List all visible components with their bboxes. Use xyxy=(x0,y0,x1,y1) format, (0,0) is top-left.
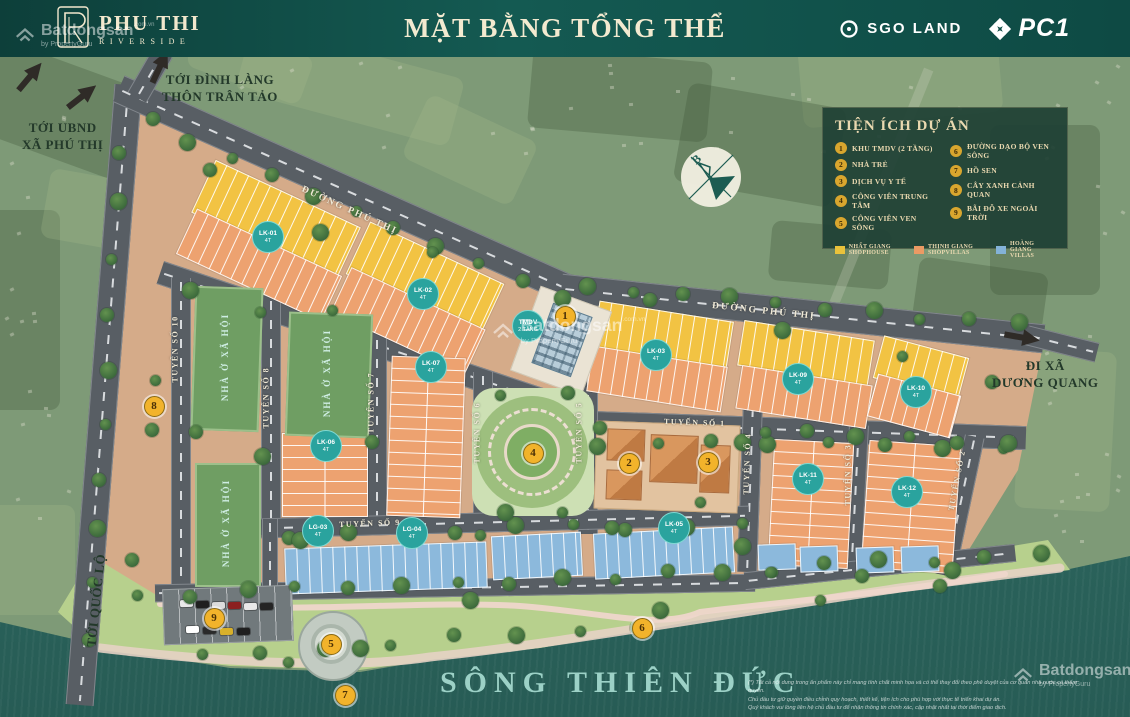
block-code-marker: TMDV2 TẦNG xyxy=(512,310,544,342)
block-code-marker: LK-034T xyxy=(640,339,672,371)
category-swatch xyxy=(996,246,1006,254)
block-code-marker: LK-064T xyxy=(310,430,342,462)
amenity-marker: 7 xyxy=(335,685,356,706)
sgo-dragon-icon xyxy=(838,18,860,40)
project-subtitle: RIVERSIDE xyxy=(99,37,201,46)
amenity-marker: 2 xyxy=(619,453,640,474)
amenities-legend: TIỆN ÍCH DỰ ÁN 1KHU TMDV (2 TẦNG)2NHÀ TR… xyxy=(822,107,1068,249)
pc1-label: PC1 xyxy=(1018,14,1070,43)
header-bar: PHU THI RIVERSIDE MẶT BẰNG TỔNG THỂ SGO … xyxy=(0,0,1130,57)
block-code-marker: LG-034T xyxy=(302,515,334,547)
legend-item: 6ĐƯỜNG DẠO BỘ VEN SÔNG xyxy=(950,142,1055,160)
category-swatch xyxy=(835,246,845,254)
partner-logos: SGO LAND PC1 xyxy=(838,0,1070,57)
site-plan-poster: NHÀ Ở XÃ HỘINHÀ Ở XÃ HỘINHÀ Ở XÃ HỘI ĐƯỜ… xyxy=(0,0,1130,717)
legend-category: THỊNH GIANG SHOPVILLAS xyxy=(914,244,982,256)
project-logo: PHU THI RIVERSIDE xyxy=(56,5,201,54)
legend-category: HOÀNG GIANG VILLAS xyxy=(996,241,1055,259)
legend-column-2: 6ĐƯỜNG DẠO BỘ VEN SÔNG7HỒ SEN8CÂY XANH C… xyxy=(950,142,1055,232)
legend-title: TIỆN ÍCH DỰ ÁN xyxy=(835,118,1055,135)
legend-item: 9BÃI ĐỖ XE NGOÀI TRỜI xyxy=(950,204,1055,222)
category-swatch xyxy=(914,246,924,254)
block-code-marker: LK-094T xyxy=(782,363,814,395)
sgo-land-label: SGO LAND xyxy=(867,20,962,37)
pc1-diamond-icon xyxy=(988,17,1012,41)
block-code-marker: LK-114T xyxy=(792,463,824,495)
legend-item: 5CÔNG VIÊN VEN SÔNG xyxy=(835,214,940,232)
pc1-logo: PC1 xyxy=(988,14,1070,43)
block-code-marker: LK-124T xyxy=(891,476,923,508)
sgo-land-logo: SGO LAND xyxy=(838,18,962,40)
legend-item: 8CÂY XANH CẢNH QUAN xyxy=(950,181,1055,199)
block-code-marker: LK-024T xyxy=(407,278,439,310)
project-name: PHU THI xyxy=(99,13,201,34)
amenity-marker: 9 xyxy=(204,608,225,629)
legend-item: 7HỒ SEN xyxy=(950,165,1055,177)
project-monogram-icon xyxy=(56,5,90,54)
disclaimer-text: (*) Tất cả nội dung trong ấn phẩm này ch… xyxy=(748,679,1078,713)
legend-column-1: 1KHU TMDV (2 TẦNG)2NHÀ TRẺ3DỊCH VỤ Y TẾ4… xyxy=(835,142,940,232)
amenity-marker: 5 xyxy=(321,634,342,655)
amenity-marker: 8 xyxy=(144,396,165,417)
amenity-marker: 6 xyxy=(632,618,653,639)
block-code-marker: LK-074T xyxy=(415,351,447,383)
legend-item: 4CÔNG VIÊN TRUNG TÂM xyxy=(835,192,940,210)
amenity-marker: 1 xyxy=(555,306,576,327)
amenity-marker: 3 xyxy=(698,452,719,473)
amenity-marker: 4 xyxy=(523,443,544,464)
legend-category: NHẤT GIANG SHOPHOUSE xyxy=(835,244,900,256)
block-code-marker: LG-044T xyxy=(396,517,428,549)
legend-item: 3DỊCH VỤ Y TẾ xyxy=(835,175,940,187)
block-code-marker: LK-054T xyxy=(658,512,690,544)
legend-item: 1KHU TMDV (2 TẦNG) xyxy=(835,142,940,154)
block-code-marker: LK-014T xyxy=(252,221,284,253)
legend-categories: NHẤT GIANG SHOPHOUSETHỊNH GIANG SHOPVILL… xyxy=(835,241,1055,259)
block-code-marker: LK-104T xyxy=(900,376,932,408)
legend-item: 2NHÀ TRẺ xyxy=(835,159,940,171)
